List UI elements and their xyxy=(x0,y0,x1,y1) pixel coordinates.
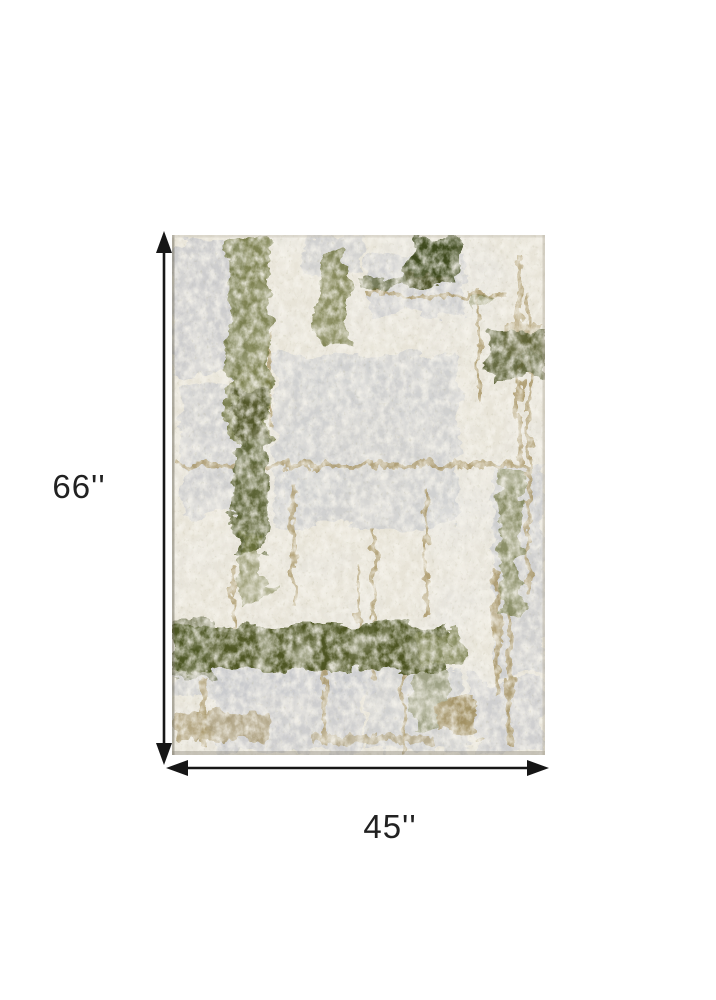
height-dimension-arrow xyxy=(156,231,172,765)
rug-image xyxy=(172,235,545,755)
width-dimension-label: 45'' xyxy=(326,807,454,847)
height-dimension-label: 66'' xyxy=(26,467,132,507)
arrow-down-icon xyxy=(156,743,172,765)
rug-pattern xyxy=(172,235,545,755)
width-dimension-arrow xyxy=(166,760,549,776)
arrow-right-icon xyxy=(527,760,549,776)
arrow-left-icon xyxy=(166,760,188,776)
product-dimension-diagram: 66'' 45'' xyxy=(0,0,716,1000)
arrow-up-icon xyxy=(156,231,172,253)
